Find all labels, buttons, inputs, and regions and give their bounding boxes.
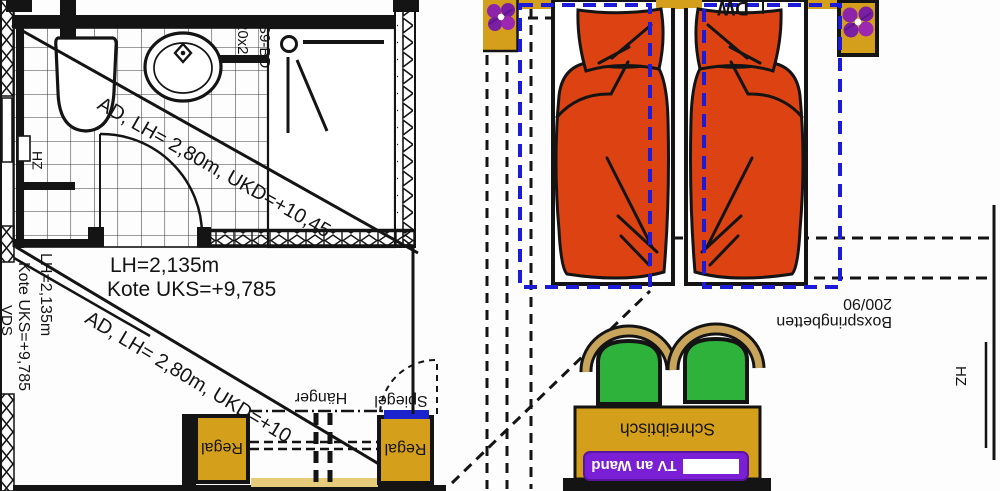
door-jamb-right (197, 227, 211, 247)
chair-right (685, 339, 747, 402)
chair-left (598, 341, 660, 404)
wall-door-panel (2, 98, 12, 162)
mirror-strip (384, 410, 429, 419)
shelf-right-label: Regal (379, 439, 432, 456)
mirror-label: Spiegel (368, 391, 434, 408)
pillow (578, 9, 663, 71)
height-note-side: LH=2,135m (36, 253, 53, 336)
desk-label: Schreibtisch (595, 420, 740, 438)
hanger-label: Hänger (286, 388, 356, 405)
wall-west-hatch (1, 0, 14, 96)
height-note: LH=2,135m (110, 255, 219, 277)
radiator-label-bedroom: HZ (952, 366, 968, 386)
duct-label: VDS (0, 305, 14, 336)
bed-note: Boxspringbetten 200/90 (748, 293, 892, 330)
bedroom (483, 0, 877, 287)
tv-label: TV an Wand (588, 457, 680, 473)
wall-stub (23, 182, 75, 190)
level-note: Kote UKS=+9,785 (107, 279, 276, 301)
tv-screen (683, 459, 739, 474)
corner-label: DW (703, 0, 763, 17)
radiator-label-bath: HZ (30, 151, 45, 170)
bed-type-label: Boxspringbetten (748, 311, 892, 329)
fixture-code: S9-BD (256, 24, 272, 68)
floor-plan: AD, LH= 2,80m, UKD=+10,45 AD, LH= 2,80m,… (0, 0, 1000, 491)
level-note-side: Kote UKS=+9,785 (14, 262, 31, 391)
bed-size-label: 200/90 (748, 293, 892, 311)
shelf-left-label: Regal (196, 438, 248, 455)
shower-drain-icon (282, 37, 297, 52)
tile-note: 20x20 (234, 22, 250, 63)
door-jamb-left (88, 227, 104, 247)
floor-plan-drawing (0, 0, 1000, 491)
